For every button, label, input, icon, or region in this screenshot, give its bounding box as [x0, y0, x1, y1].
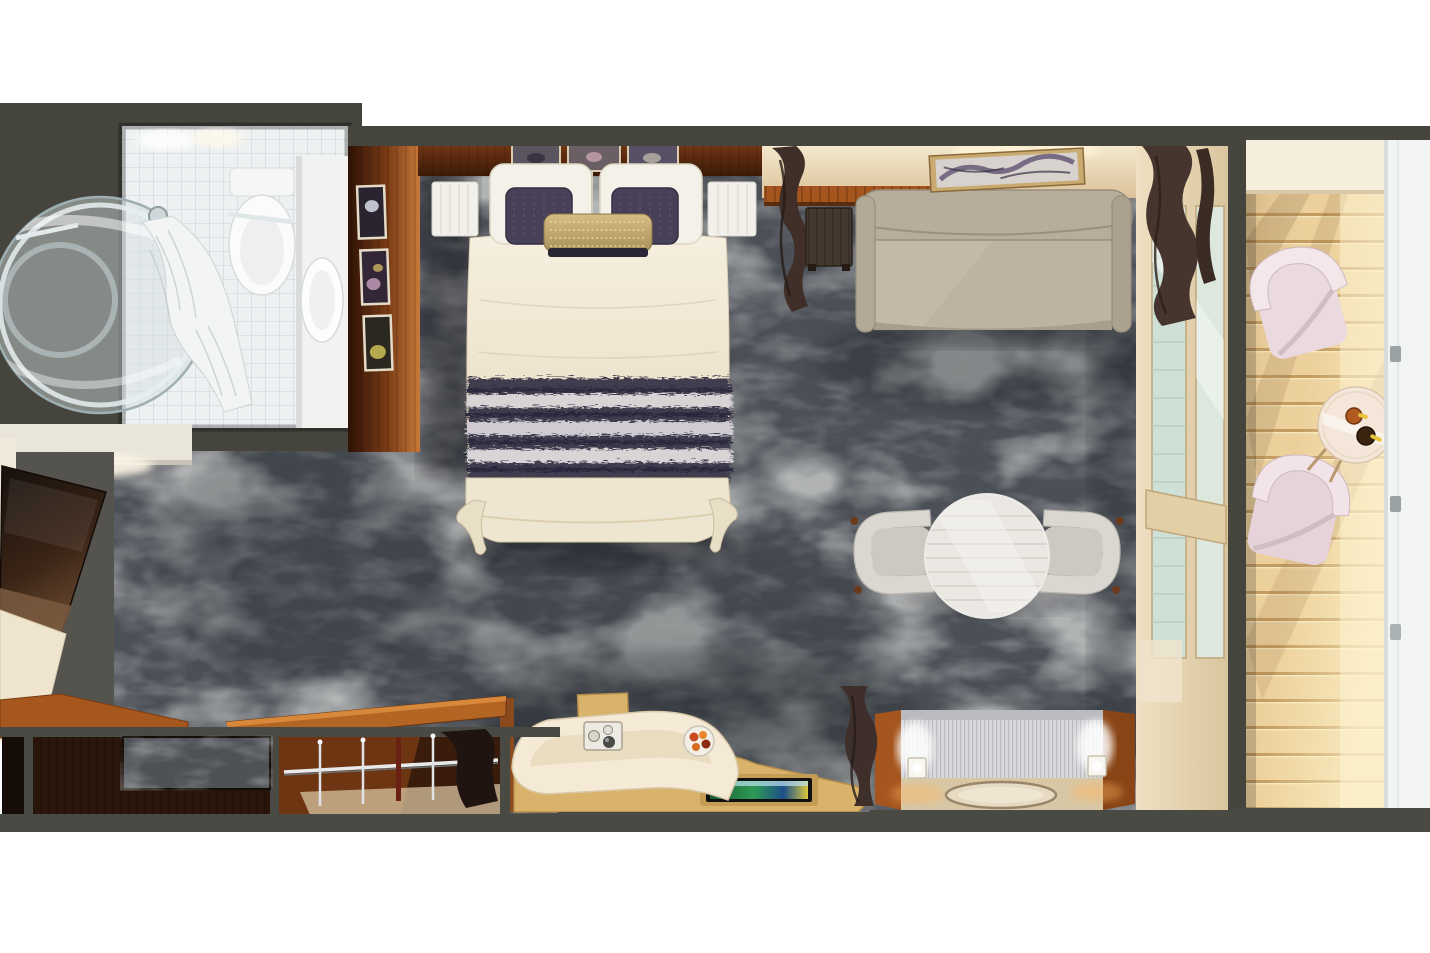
cabinet-divider — [270, 727, 279, 817]
bathroom — [0, 103, 362, 451]
bed — [453, 164, 743, 571]
bottom-wall — [558, 812, 874, 832]
toilet — [229, 168, 295, 295]
cabinet-divider — [500, 727, 510, 817]
marble-inset-texture — [123, 737, 270, 789]
dining-table — [925, 494, 1050, 618]
pillow-gold — [544, 214, 652, 257]
bottom-wall — [1232, 808, 1430, 832]
sofa — [856, 190, 1132, 348]
top-wall — [348, 126, 1236, 146]
railing-clamp — [1390, 624, 1401, 640]
balcony-top-wall — [1236, 126, 1430, 140]
nightstand-right — [708, 182, 756, 236]
door-threshold — [1138, 640, 1182, 702]
balcony-door-wall — [1136, 126, 1252, 818]
sofa-arm-left — [856, 196, 875, 332]
open-cubby — [2, 737, 24, 815]
side-table — [806, 208, 852, 271]
bottom-wall — [0, 814, 562, 832]
dark-cabinets — [33, 737, 270, 815]
sofa-arm-right — [1112, 196, 1131, 332]
credenza-top-edge — [901, 710, 1103, 720]
cabinet-divider — [24, 727, 33, 817]
sofa-artwork — [929, 148, 1085, 192]
nightstand-left — [432, 182, 478, 236]
railing-clamp — [1390, 346, 1401, 362]
floorplan-svg — [0, 0, 1430, 953]
coffee-tray — [584, 722, 622, 750]
balcony — [1241, 140, 1430, 814]
bathroom-ceiling-light — [136, 130, 196, 150]
striped-blanket — [464, 376, 730, 480]
picture-frame — [357, 186, 386, 239]
wardrobe — [279, 729, 500, 815]
picture-frame — [360, 250, 389, 305]
credenza — [875, 710, 1135, 812]
stateroom-floorplan — [0, 0, 1430, 953]
food-plate — [684, 726, 714, 756]
glass-railing — [1384, 140, 1430, 814]
railing-clamp — [1390, 496, 1401, 512]
oval-tray-inner — [958, 787, 1044, 803]
bathroom-ceiling-light — [192, 129, 244, 147]
vanity-sink — [296, 156, 348, 428]
bottom-wall — [870, 810, 1236, 832]
sofa-back — [858, 190, 1132, 240]
picture-frame — [364, 315, 393, 370]
